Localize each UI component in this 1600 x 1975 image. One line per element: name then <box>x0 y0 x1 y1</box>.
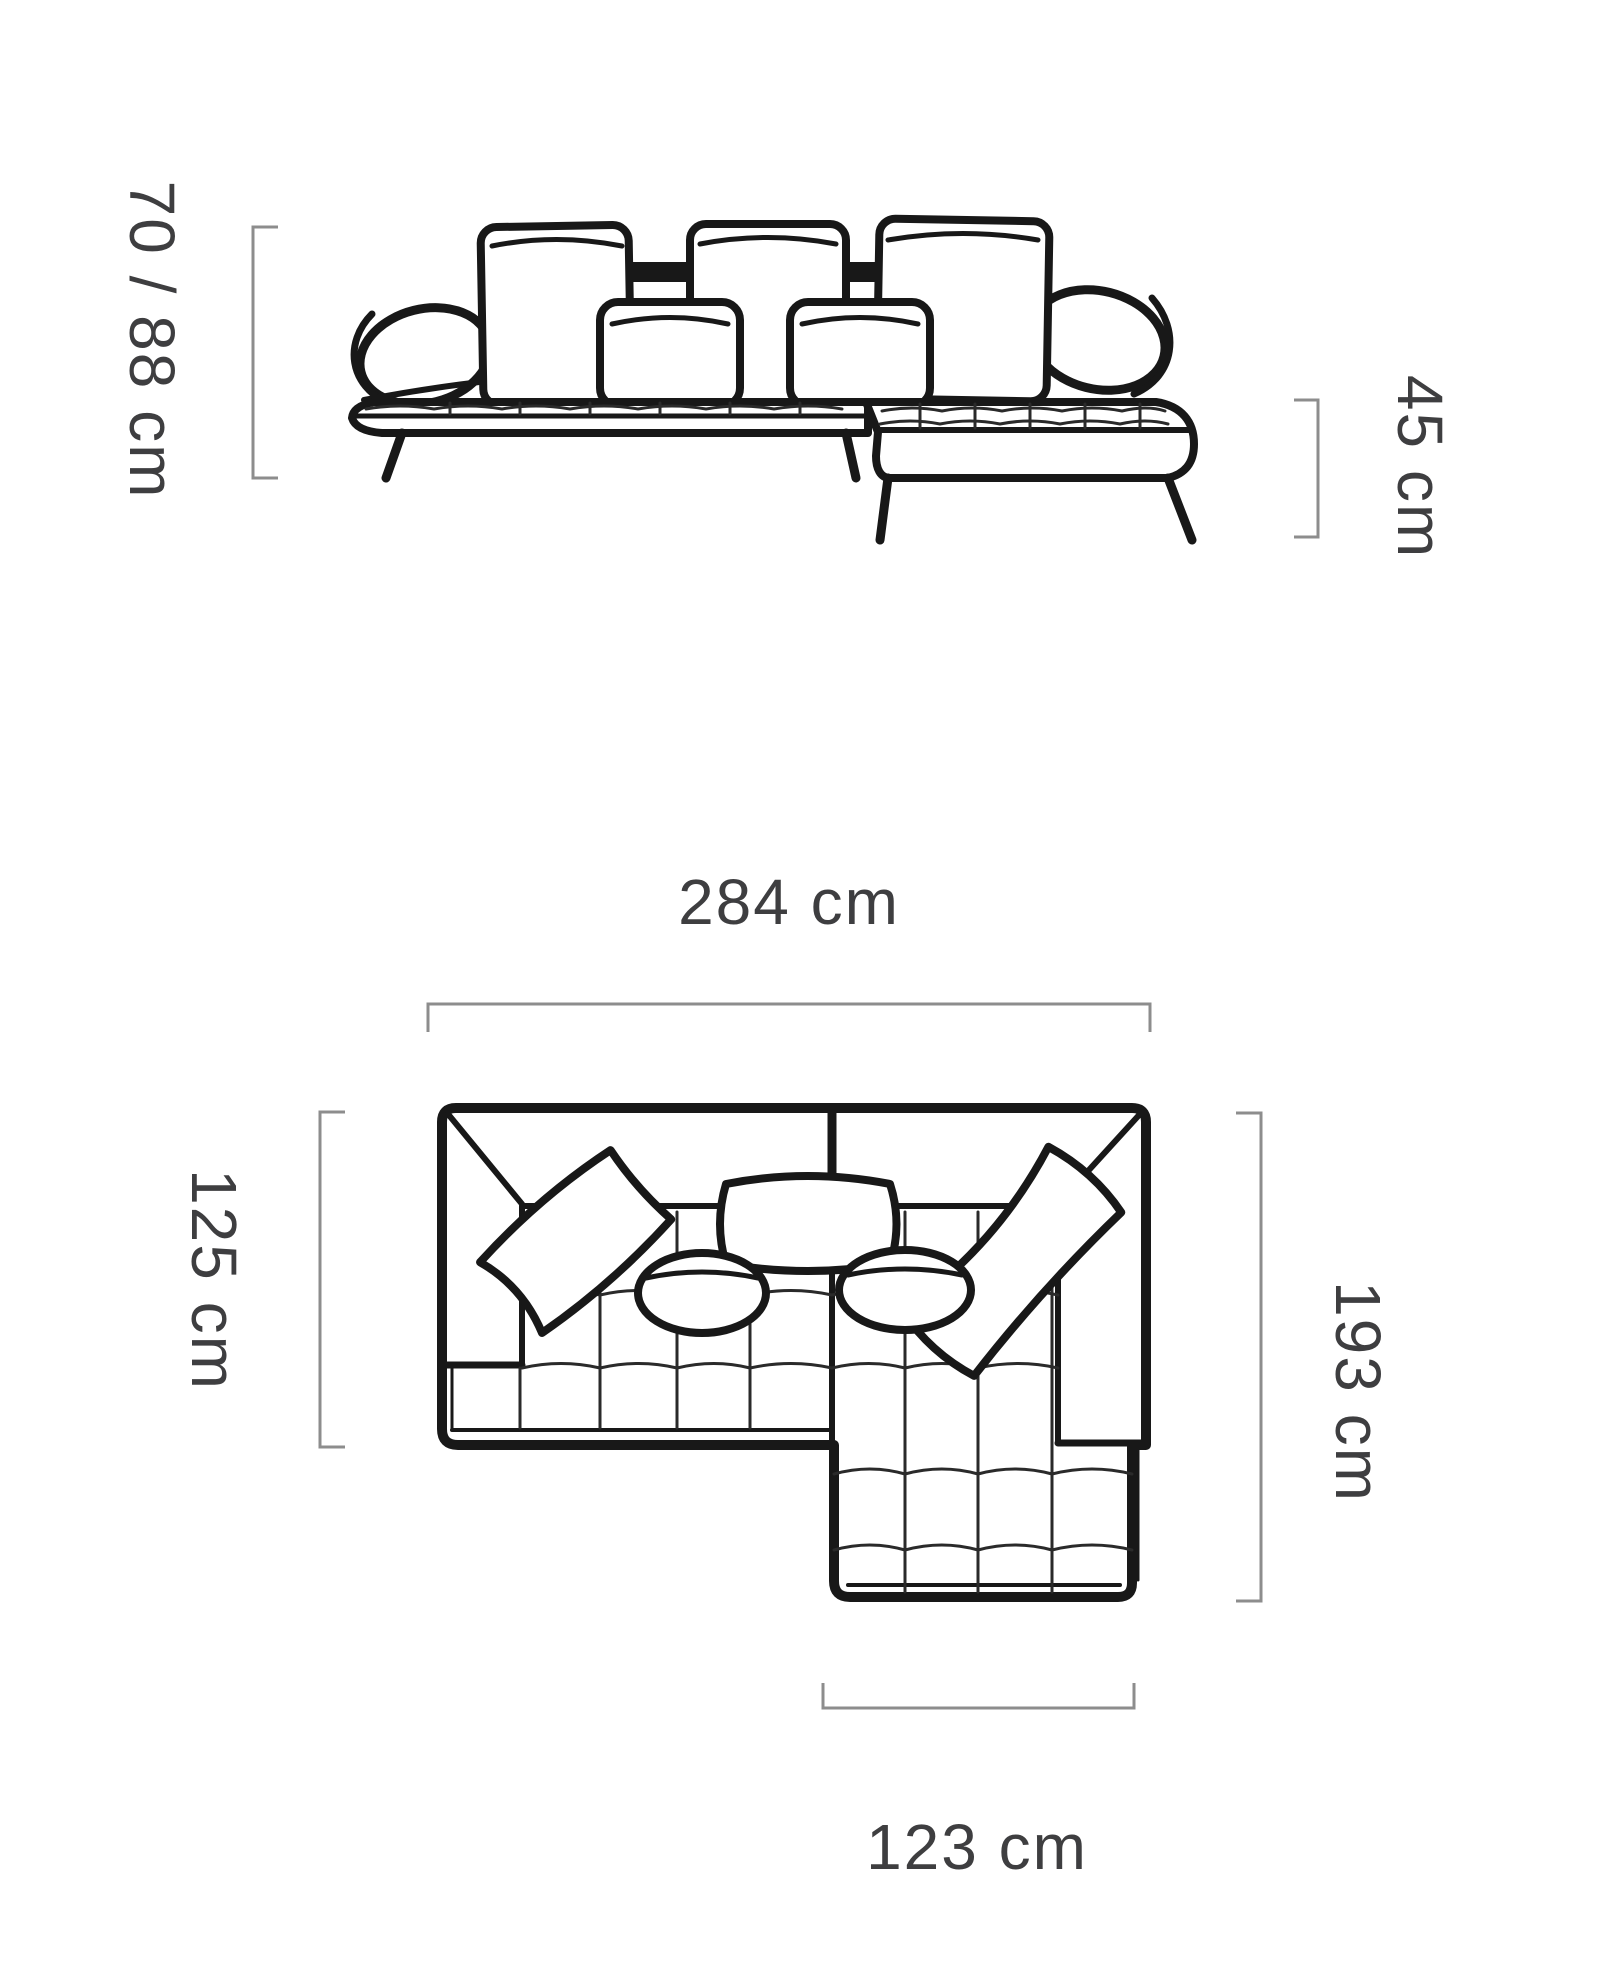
chaise-width-bracket <box>823 1683 1134 1708</box>
sofa-dimension-diagram: 70 / 88 cm 45 cm 284 cm 125 cm 193 cm 12… <box>0 0 1600 1975</box>
total-depth-label: 193 cm <box>1322 1281 1394 1503</box>
sofa-depth-label: 125 cm <box>178 1169 250 1391</box>
total-depth-bracket <box>1236 1113 1261 1601</box>
total-width-bracket <box>428 1004 1150 1032</box>
seat-height-bracket <box>1294 400 1318 537</box>
back-height-label: 70 / 88 cm <box>116 181 188 500</box>
back-height-bracket <box>253 227 278 478</box>
total-width-label: 284 cm <box>678 866 900 938</box>
front-back-pillows-icon <box>480 219 1049 406</box>
front-chaise-seat <box>866 402 1194 478</box>
sofa-depth-bracket <box>320 1112 345 1447</box>
dimension-diagram-page: 70 / 88 cm 45 cm 284 cm 125 cm 193 cm 12… <box>0 0 1600 1975</box>
front-left-seat <box>352 402 868 433</box>
chaise-width-label: 123 cm <box>866 1811 1088 1883</box>
sofa-front-view-drawing <box>350 219 1194 540</box>
sofa-top-view-drawing <box>442 1108 1146 1597</box>
seat-height-label: 45 cm <box>1384 375 1456 559</box>
